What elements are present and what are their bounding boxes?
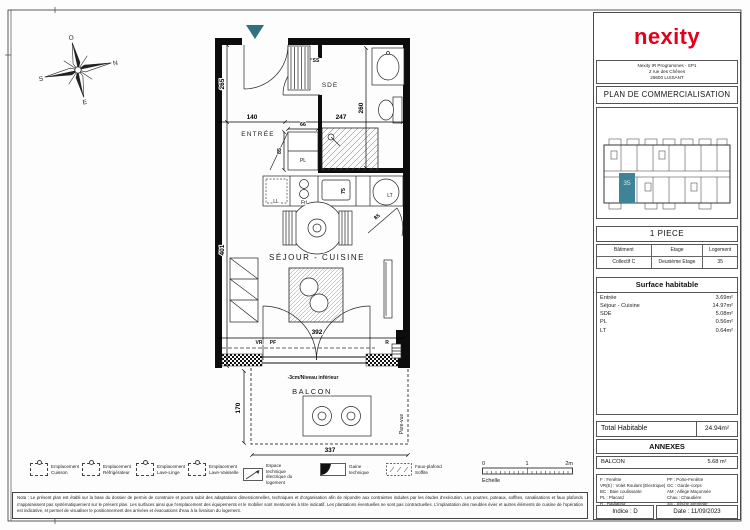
label-pl: PL	[300, 158, 306, 164]
washbasin	[372, 48, 404, 85]
surface-value: 0.64m²	[716, 328, 733, 334]
room-label-sde: SDE	[322, 82, 338, 89]
legend-label: Emplacement Lave-Linge	[157, 464, 187, 475]
unit-header-etage: Etage	[652, 245, 704, 257]
surface-row: LT 0.64m²	[597, 325, 737, 333]
kitchen-counter	[263, 176, 403, 206]
bed	[289, 268, 343, 322]
revision-row: Indice : D Date : 11/09/2023	[596, 505, 738, 519]
dim-337: 337	[325, 447, 336, 454]
annexes-title: ANNEXES	[596, 439, 738, 454]
legend-item-lave-linge: Emplacement Lave-Linge	[136, 463, 187, 476]
compass-o-label: O	[68, 34, 74, 42]
unit-type: 1 PIECE	[596, 226, 738, 242]
legend-item-faux-plafond: Faux-plafond Soffite	[386, 463, 445, 476]
keyplan-drawing: 35	[601, 123, 733, 215]
scale-bar: 0 1 2m Echelle	[480, 457, 576, 492]
espace-technique-icon	[243, 468, 263, 481]
am-wall-left	[222, 354, 262, 366]
wardrobe	[230, 258, 258, 322]
unit-value-batiment: Collectif C	[597, 257, 652, 268]
compass-s-label: S	[38, 75, 44, 83]
room-label-entree: ENTRÉE	[241, 129, 275, 138]
surface-row: Séjour - Cuisine 14.97m²	[597, 301, 737, 309]
surface-row: PL 0.56m²	[597, 317, 737, 325]
label-r: R	[385, 340, 389, 346]
abbreviations-legend: F : Fenêtre VR(E) : Volet Roulant (Elect…	[596, 474, 738, 503]
legend-label: Emplacement Cuisson	[51, 464, 81, 475]
appliance-slot-icon	[30, 463, 48, 476]
abbr-item: VR(E) : Volet Roulant (Electrique)	[600, 483, 667, 489]
unit-table: Bâtiment Etage Logement Collectif C Deux…	[596, 244, 738, 269]
annexe-label: BALCON	[597, 457, 697, 468]
label-ll: LL	[273, 199, 279, 205]
unit-value-logement: 35	[703, 257, 737, 268]
room-label-balcon: BALCON	[292, 387, 332, 396]
appliance-slot-icon	[188, 463, 206, 476]
document-title: PLAN DE COMMERCIALISATION	[596, 86, 738, 104]
surface-label: Séjour - Cuisine	[600, 303, 640, 309]
surface-label: SDE	[600, 311, 612, 317]
legend-label: Emplacement Lave-Vaisselle	[209, 464, 241, 475]
surface-row: Entrée 3.69m²	[597, 293, 737, 301]
surface-value: 14.97m²	[712, 303, 733, 309]
indice: Indice : D	[596, 505, 654, 519]
address-line-3: 28600 LUISANT	[597, 75, 737, 81]
surface-label: Entrée	[600, 295, 616, 301]
brand-logo: nexity	[594, 15, 740, 59]
abbreviations-left: F : Fenêtre VR(E) : Volet Roulant (Elect…	[600, 477, 667, 500]
dim-247: 247	[336, 114, 347, 121]
toilet	[379, 97, 403, 123]
towel-radiator	[288, 46, 310, 90]
keyplan-box: 35	[596, 107, 738, 219]
annexe-balcon-row: BALCON 5.68 m²	[596, 456, 738, 469]
shower	[322, 128, 378, 170]
abbreviations-right: PF : Porte-Fenêtre GC : Garde-corps AM :…	[667, 477, 734, 500]
total-value: 24.94m²	[696, 422, 737, 436]
dim-140: 140	[247, 114, 258, 121]
total-habitable-row: Total Habitable 24.94m²	[596, 421, 738, 437]
legend-label: Espace technique électrique du logement	[266, 463, 302, 485]
dim-401: 401	[219, 244, 226, 255]
legend-item-cuisson: Emplacement Cuisson	[30, 463, 81, 476]
appliance-slot-icon	[82, 463, 100, 476]
radiator-bottom	[392, 344, 401, 358]
scale-label: Echelle	[482, 478, 500, 484]
legend-label: Gaine technique	[349, 464, 381, 475]
dim-170: 170	[235, 402, 242, 413]
dim-392: 392	[312, 329, 323, 336]
project-address: Nexity IR Programmes - SP1 2 rue des Chê…	[596, 60, 738, 84]
surface-row: SDE 5.08m²	[597, 309, 737, 317]
symbols-legend: Emplacement Cuisson Emplacement Réfrigér…	[0, 459, 592, 491]
compass-e-label: E	[82, 99, 88, 107]
label-ss: SS	[313, 58, 320, 64]
legend-label: Emplacement Réfrigérateur	[103, 464, 135, 475]
dim-85-pl: 85	[277, 148, 283, 154]
appliance-slot-icon	[136, 463, 154, 476]
scale-0: 0	[482, 461, 485, 467]
label-level: -3cm/Niveau inférieur	[288, 375, 339, 381]
duct	[384, 260, 392, 318]
faux-plafond-icon	[386, 463, 412, 476]
room-label-sejour: SÉJOUR - CUISINE	[269, 253, 365, 262]
legend-item-lave-vaisselle: Emplacement Lave-Vaisselle	[188, 463, 241, 476]
surface-label: LT	[600, 328, 606, 334]
nexity-logo: nexity	[634, 24, 700, 50]
keyplan-highlighted-unit	[619, 173, 635, 203]
keyplan-unit-number: 35	[623, 180, 631, 187]
compass-n-label: N	[112, 60, 118, 68]
compass-rose: N S O E	[31, 26, 125, 114]
legend-item-espace-technique: Espace technique électrique du logement	[243, 463, 302, 485]
dining-table	[283, 202, 352, 254]
gaine-technique-icon	[320, 463, 346, 476]
total-label: Total Habitable	[597, 422, 696, 436]
disclaimer-note: Nota : Le présent plan est établi sur la…	[12, 492, 588, 519]
dim-260: 260	[358, 102, 365, 113]
unit-header-logement: Logement	[703, 245, 737, 257]
surface-value: 3.69m²	[716, 295, 733, 301]
label-pf: PF	[270, 340, 276, 346]
unit-header-batiment: Bâtiment	[597, 245, 652, 257]
surface-table: Surface habitable Entrée 3.69m² Séjour -…	[596, 277, 738, 415]
unit-value-etage: Deuxième Etage	[652, 257, 704, 268]
dim-75: 75	[341, 188, 347, 194]
legend-item-gaine: Gaine technique	[320, 463, 381, 476]
entrance-arrow-icon	[246, 25, 264, 39]
scale-1: 1	[525, 461, 528, 467]
label-fri: Fri	[301, 200, 307, 206]
dim-66: 66	[300, 122, 306, 128]
surface-label: PL	[600, 319, 607, 325]
fixtures	[222, 46, 408, 444]
dim-85-door: 85	[373, 213, 381, 221]
label-pare-vue: Pare-vue	[399, 414, 405, 435]
label-lt: LT	[387, 193, 392, 199]
surface-value: 0.56m²	[716, 319, 733, 325]
scale-2m: 2m	[565, 461, 573, 467]
legend-label: Faux-plafond Soffite	[415, 464, 445, 475]
date: Date : 11/09/2023	[656, 505, 738, 519]
label-vr: VR	[256, 340, 263, 346]
title-block-panel: nexity Nexity IR Programmes - SP1 2 rue …	[593, 12, 741, 520]
surface-value: 5.08m²	[716, 311, 733, 317]
annexe-value: 5.68 m²	[697, 457, 737, 468]
dim-265: 265	[219, 78, 226, 89]
water-heater	[373, 179, 399, 205]
surface-table-title: Surface habitable	[597, 278, 737, 293]
legend-item-refrigerateur: Emplacement Réfrigérateur	[82, 463, 135, 476]
